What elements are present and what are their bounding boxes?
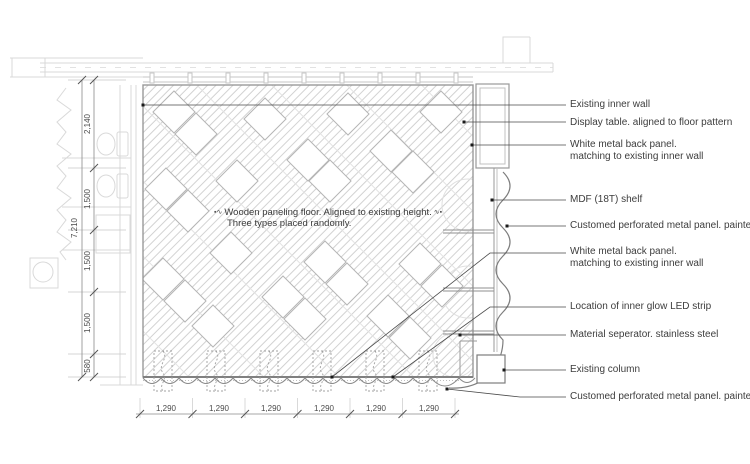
dim-bottom-segment-5: 1,290 <box>350 404 402 413</box>
callout-perforated-panel-upper: Customed perforated metal panel. painted <box>570 220 750 232</box>
dim-left-segment-2: 1,500 <box>83 177 93 221</box>
dim-left-overall: 7,210 <box>70 206 80 250</box>
dim-left-segment-1: 2,140 <box>83 102 93 146</box>
dim-bottom-segment-2: 1,290 <box>193 404 245 413</box>
existing-column-outline <box>477 355 505 383</box>
floor-note-line2: Three types placed randomly. <box>212 218 444 229</box>
floor-note: ▪∿Wooden paneling floor. Aligned to exis… <box>212 207 444 229</box>
callout-led-strip: Location of inner glow LED strip <box>570 301 711 313</box>
callout-material-separator: Material seperator. stainless steel <box>570 329 718 341</box>
architectural-detail-drawing: Existing inner wall Display table. align… <box>0 0 750 464</box>
callout-existing-column: Existing column <box>570 364 640 376</box>
bottom-scallop-edge <box>143 377 475 386</box>
callout-existing-inner-wall: Existing inner wall <box>570 99 650 111</box>
dim-bottom-segment-1: 1,290 <box>140 404 192 413</box>
floor-note-line1: ▪∿Wooden paneling floor. Aligned to exis… <box>212 207 444 218</box>
display-table-outline <box>476 84 509 168</box>
callout-white-metal-back-panel-lower: White metal back panel.matching to exist… <box>570 246 703 270</box>
callout-mdf-shelf: MDF (18T) shelf <box>570 194 642 206</box>
dim-bottom-segment-3: 1,290 <box>245 404 297 413</box>
reference-squiggle-icon: ∿▪ <box>432 209 444 216</box>
dim-left-segment-4: 1,500 <box>83 301 93 345</box>
dim-bottom-segment-4: 1,290 <box>298 404 350 413</box>
dim-bottom-segment-6: 1,290 <box>403 404 455 413</box>
callout-display-table: Display table. aligned to floor pattern <box>570 117 732 129</box>
reference-squiggle-icon: ▪∿ <box>212 209 224 216</box>
dim-left-segment-5: 580 <box>83 344 93 388</box>
dim-left-segment-3: 1,500 <box>83 239 93 283</box>
callout-white-metal-back-panel-upper: White metal back panel.matching to exist… <box>570 139 703 163</box>
callout-perforated-panel-lower: Customed perforated metal panel. painted <box>570 391 750 403</box>
